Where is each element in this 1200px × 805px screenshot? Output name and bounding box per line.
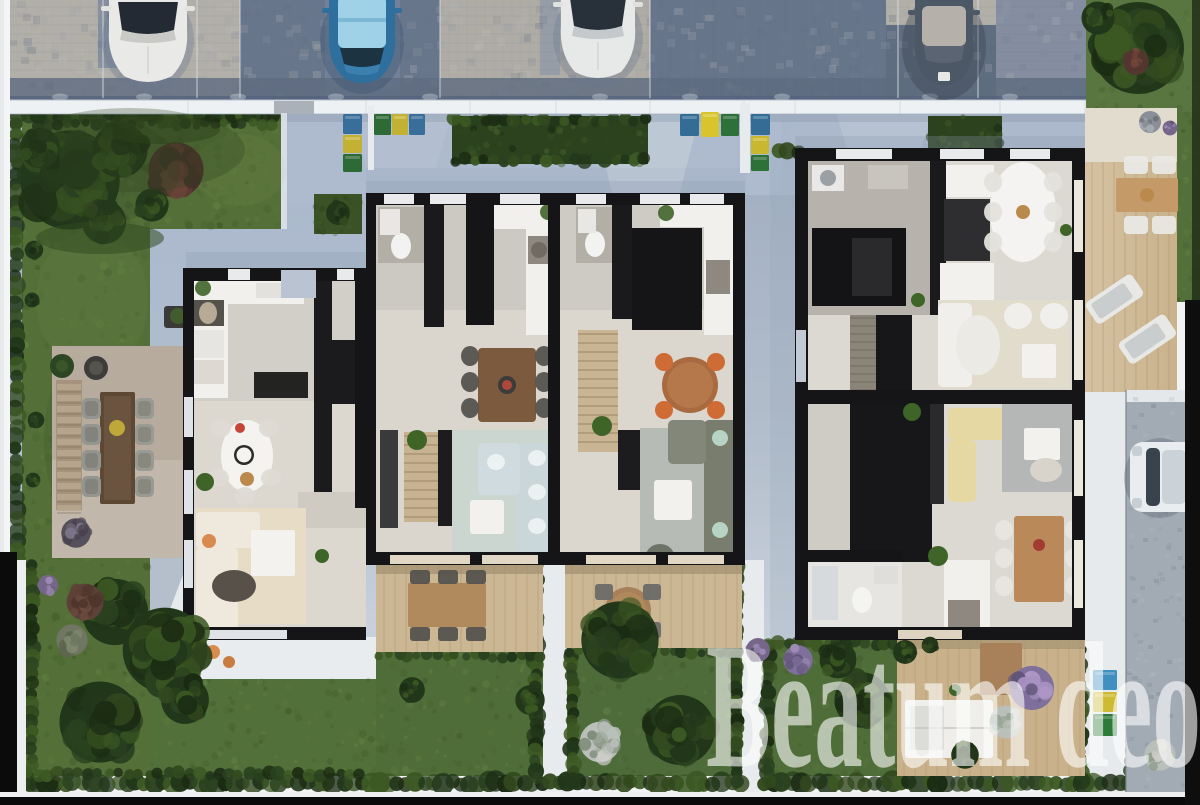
svg-text:Beatum deo: Beatum deo <box>706 606 1200 805</box>
